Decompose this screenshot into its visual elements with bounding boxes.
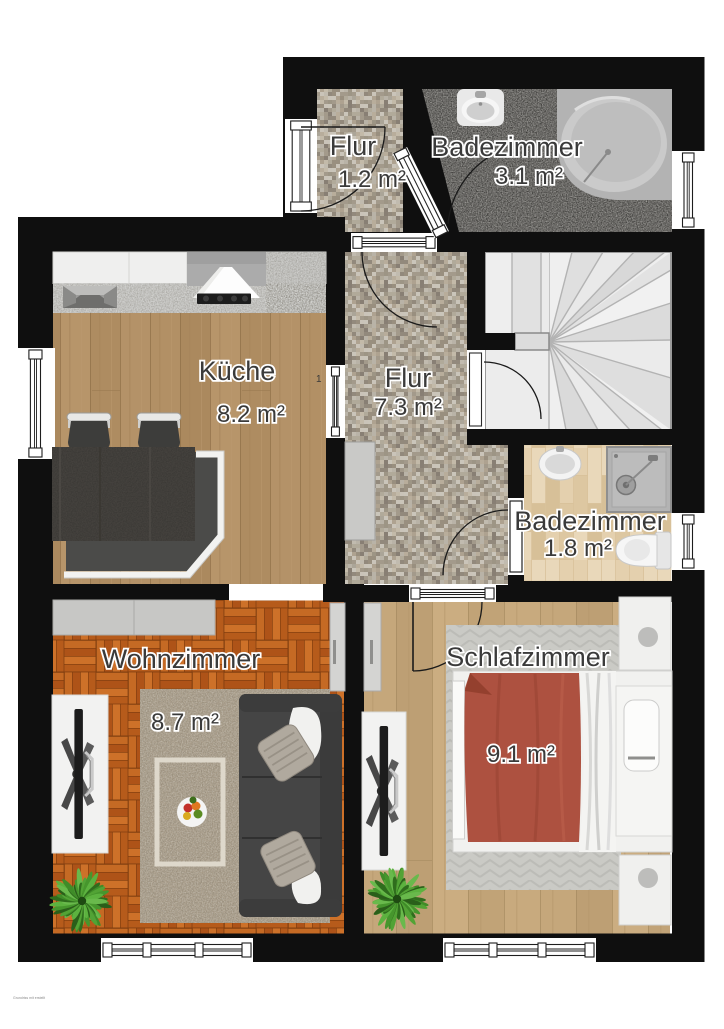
svg-text:8.2 m²: 8.2 m² <box>217 401 285 428</box>
svg-text:Wohnzimmer: Wohnzimmer <box>102 644 261 674</box>
svg-text:Küche: Küche <box>199 356 276 386</box>
svg-text:8.7 m²: 8.7 m² <box>151 709 219 736</box>
svg-text:1.2 m²: 1.2 m² <box>338 166 406 193</box>
svg-text:Flur: Flur <box>330 131 377 161</box>
svg-text:3.1 m²: 3.1 m² <box>495 163 563 190</box>
svg-text:1: 1 <box>316 374 322 385</box>
svg-text:9.1 m²: 9.1 m² <box>487 741 555 768</box>
svg-text:Flur: Flur <box>385 363 432 393</box>
svg-text:1.8 m²: 1.8 m² <box>544 535 612 562</box>
svg-text:Grundriss mit erstellt: Grundriss mit erstellt <box>13 996 45 1000</box>
svg-text:Badezimmer: Badezimmer <box>514 506 666 536</box>
svg-text:Schlafzimmer: Schlafzimmer <box>446 642 610 672</box>
svg-text:Badezimmer: Badezimmer <box>431 132 583 162</box>
svg-text:7.3 m²: 7.3 m² <box>374 394 442 421</box>
